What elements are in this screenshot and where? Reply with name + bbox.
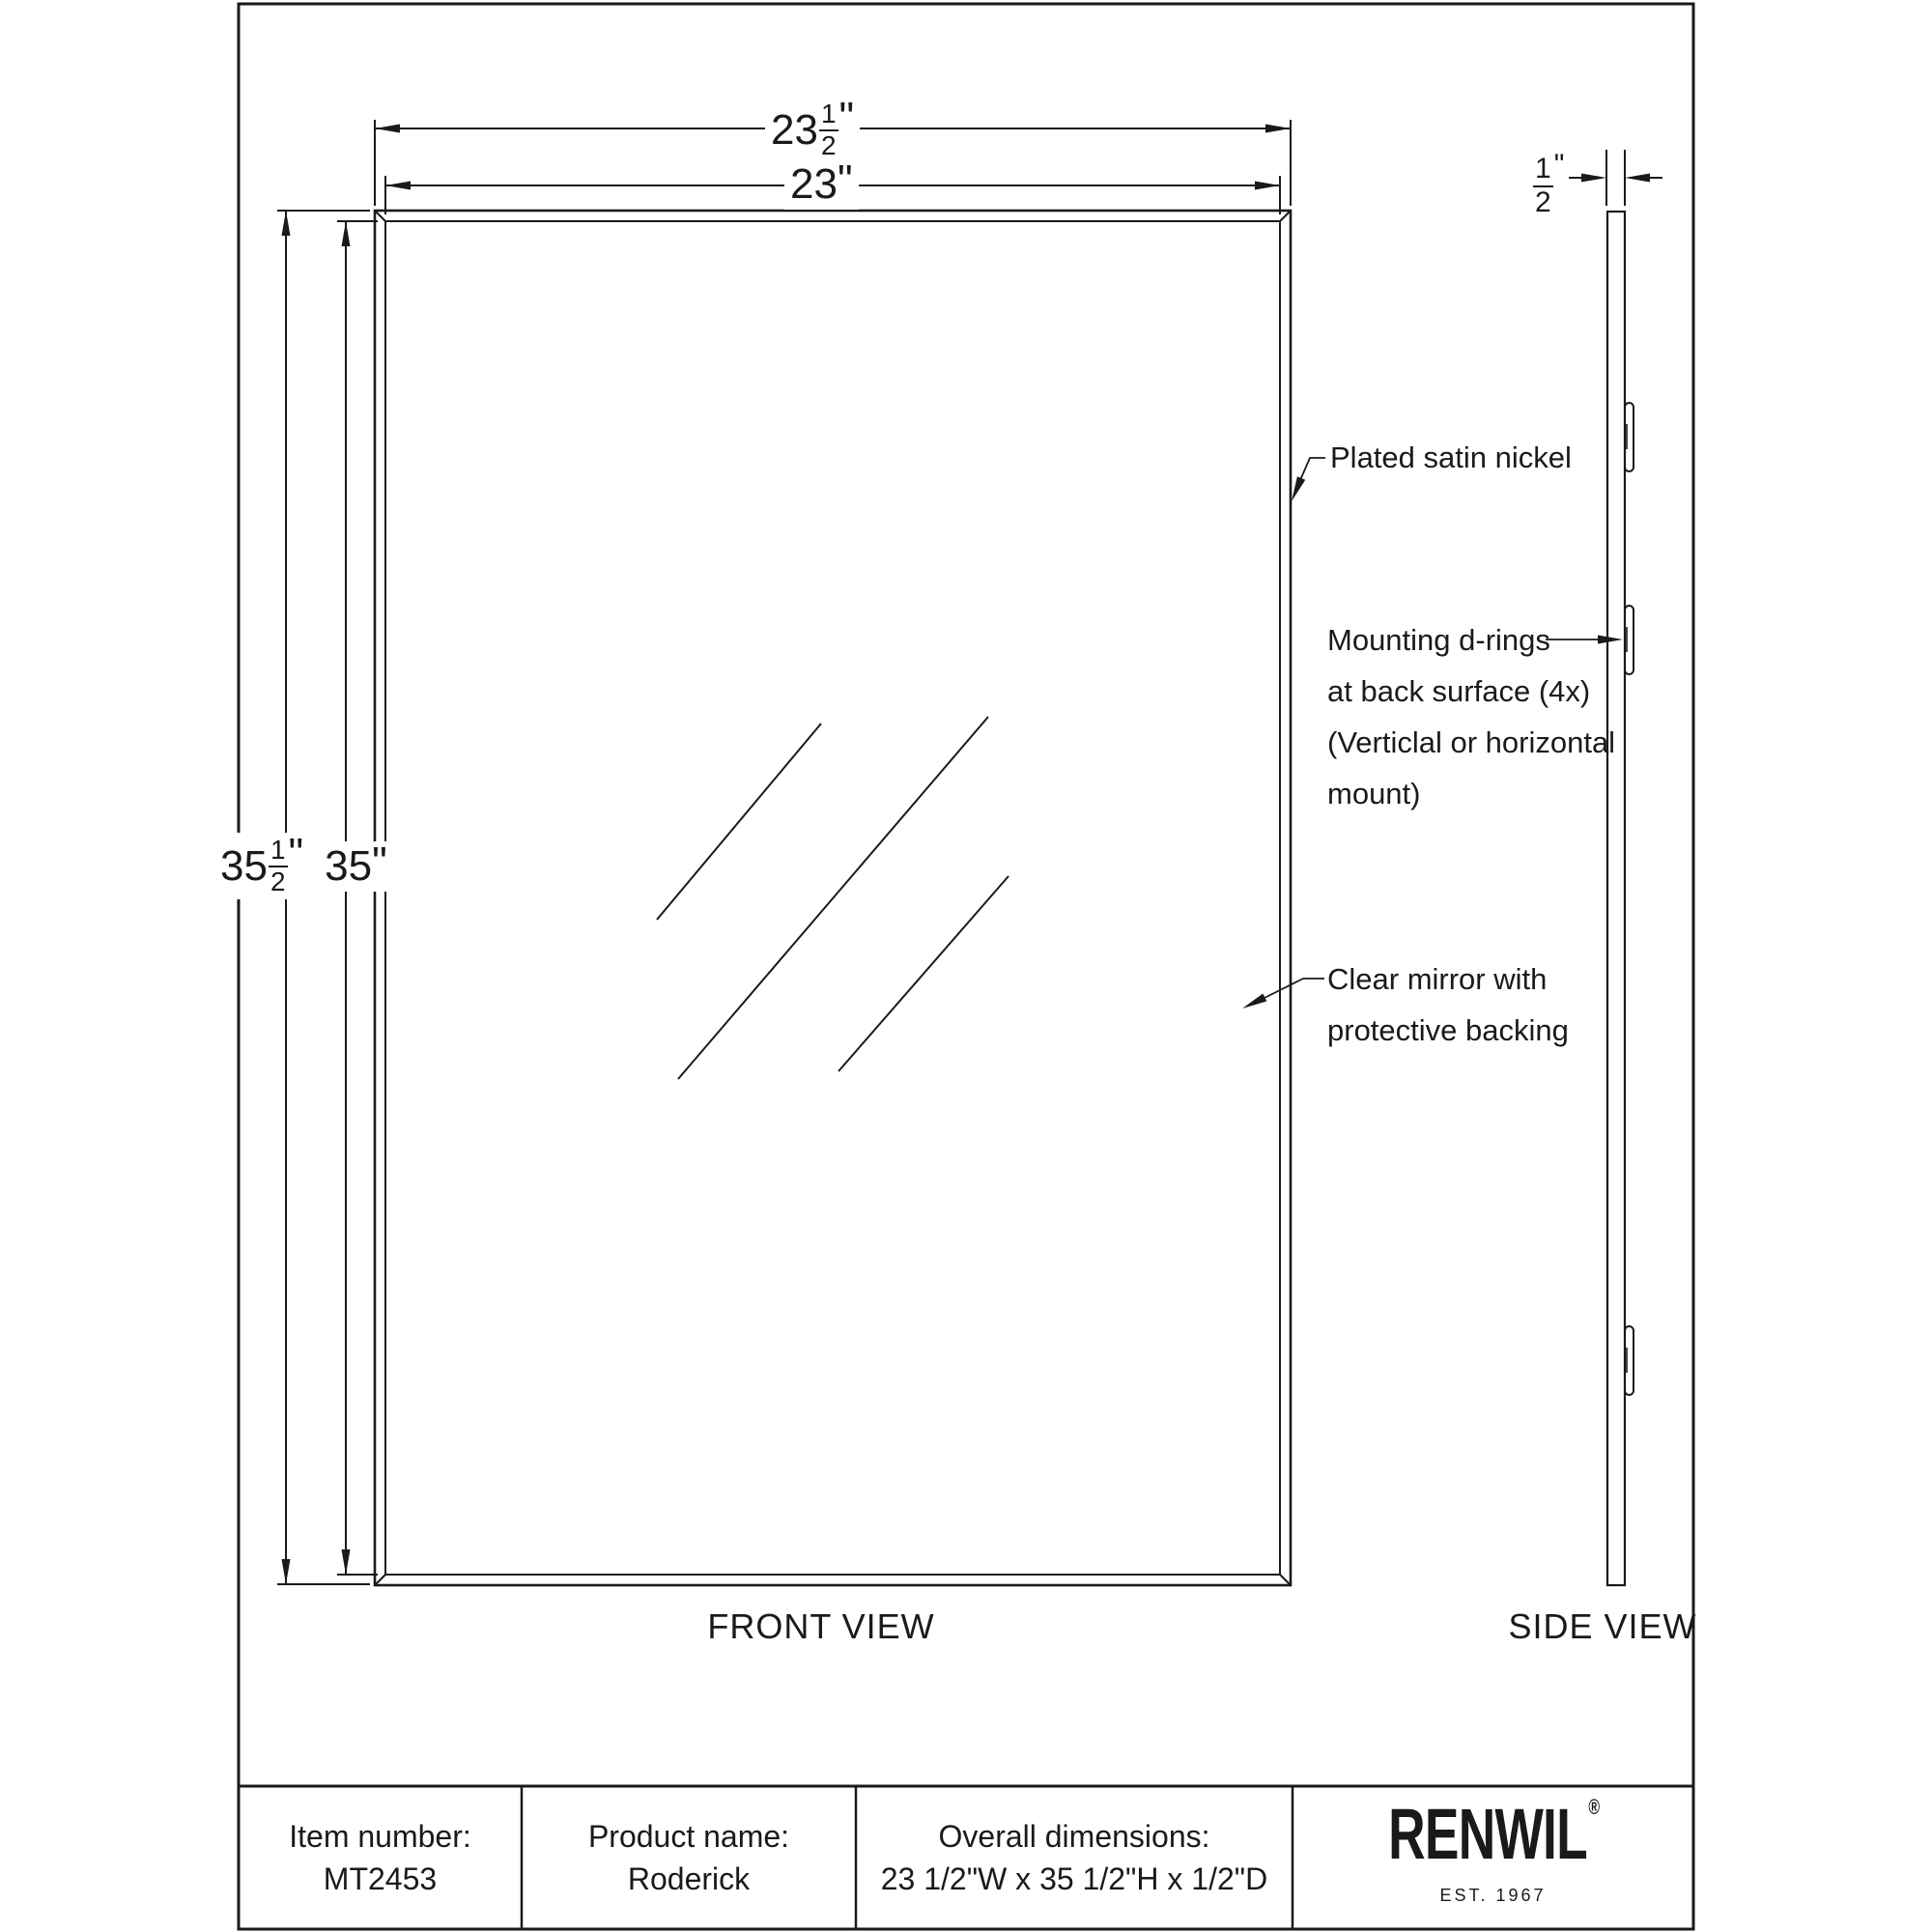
annotation-drings: Mounting d-rings at back surface (4x) (V…: [1327, 614, 1615, 819]
leader-frame-finish: [1292, 458, 1325, 501]
overall-dimensions-value: 23 1/2"W x 35 1/2"H x 1/2"D: [881, 1858, 1267, 1900]
dim-depth: [1569, 150, 1662, 206]
dim-label-depth: 12": [1528, 153, 1568, 219]
titleblock-product-name-cell: Product name: Roderick: [522, 1786, 856, 1929]
dim-width-overall-whole: 23: [771, 109, 818, 152]
overall-dimensions-label: Overall dimensions:: [939, 1815, 1210, 1858]
annotation-drings-line2: at back surface (4x): [1327, 666, 1615, 717]
side-view-label: SIDE VIEW: [1506, 1606, 1699, 1647]
titleblock-overall-dimensions-cell: Overall dimensions: 23 1/2"W x 35 1/2"H …: [856, 1786, 1293, 1929]
dim-labels-height: 3512" 35": [214, 833, 393, 899]
inch-mark: ": [838, 159, 853, 202]
registered-trademark-icon: ®: [1588, 1795, 1599, 1819]
dim-label-height-mirror: 35": [319, 841, 393, 892]
annotation-drings-line4: mount): [1327, 768, 1615, 819]
inch-mark: ": [372, 841, 387, 884]
leader-mirror: [1242, 979, 1324, 1009]
annotation-mirror: Clear mirror with protective backing: [1327, 953, 1569, 1056]
spec-sheet: 2312" 23" 3512" 35" 12" Plated satin nic…: [0, 0, 1932, 1932]
side-view-profile: [1607, 212, 1634, 1585]
dim-height-overall-fraction: 12: [269, 837, 288, 895]
brand-established: EST. 1967: [1439, 1874, 1546, 1917]
product-name-label: Product name:: [588, 1815, 789, 1858]
annotation-frame-finish: Plated satin nickel: [1330, 442, 1572, 473]
brand-logo: RENWIL® EST. 1967: [1348, 1799, 1638, 1917]
inch-mark: ": [289, 833, 304, 875]
product-name-value: Roderick: [628, 1858, 750, 1900]
dim-width-overall-fraction: 12: [819, 100, 838, 159]
dim-depth-fraction: 12: [1533, 155, 1553, 217]
annotation-drings-line1: Mounting d-rings: [1327, 614, 1615, 666]
mirror-shine-lines: [657, 717, 1009, 1079]
annotation-mirror-line1: Clear mirror with: [1327, 953, 1569, 1005]
dim-label-width-overall: 2312": [765, 97, 860, 163]
titleblock-item-number-cell: Item number: MT2453: [239, 1786, 522, 1929]
item-number-value: MT2453: [324, 1858, 437, 1900]
item-number-label: Item number:: [289, 1815, 471, 1858]
front-view-label: FRONT VIEW: [676, 1606, 966, 1647]
dim-label-height-overall: 3512": [214, 833, 309, 899]
inch-mark: ": [1554, 151, 1565, 180]
brand-name: RENWIL: [1388, 1794, 1587, 1874]
annotation-mirror-line2: protective backing: [1327, 1005, 1569, 1056]
titleblock-brand-cell: RENWIL® EST. 1967: [1293, 1786, 1693, 1929]
annotation-drings-line3: (Verticlal or horizontal: [1327, 717, 1615, 768]
dim-label-width-mirror: 23": [784, 159, 859, 210]
inch-mark: ": [839, 97, 855, 139]
